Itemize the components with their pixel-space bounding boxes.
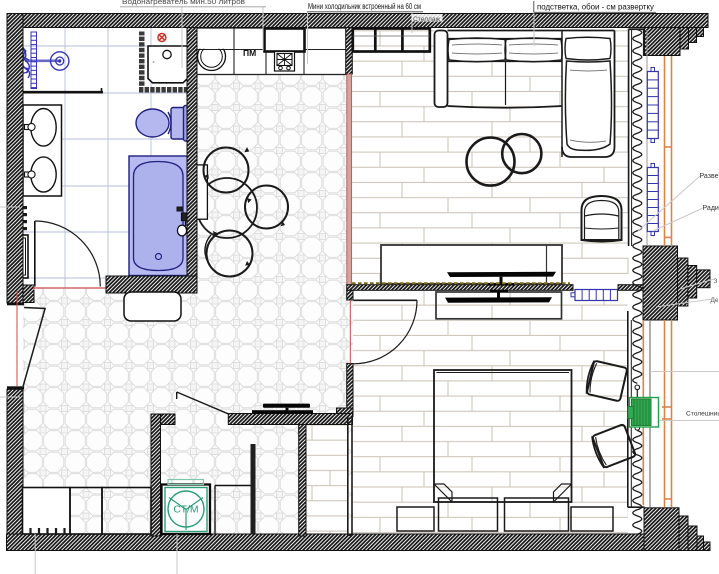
svg-text:Радиатор: Радиатор xyxy=(703,205,719,212)
svg-text:Столешница: Столешница xyxy=(686,411,719,418)
svg-text:З: З xyxy=(714,278,718,285)
svg-text:Водонагреватель мин.50 литров: Водонагреватель мин.50 литров xyxy=(122,0,245,6)
svg-text:Стеллаж: Стеллаж xyxy=(413,16,440,23)
svg-text:ПМ: ПМ xyxy=(243,48,256,58)
svg-text:СТ/М: СТ/М xyxy=(173,504,198,516)
svg-text:подстветка, обои - см разверт: подстветка, обои - см развертку xyxy=(537,3,654,12)
svg-text:Мини холодильник встроенный на: Мини холодильник встроенный на 60 см xyxy=(308,2,421,11)
svg-text:Развертка: Развертка xyxy=(700,173,719,180)
svg-text:Де: Де xyxy=(711,297,719,304)
